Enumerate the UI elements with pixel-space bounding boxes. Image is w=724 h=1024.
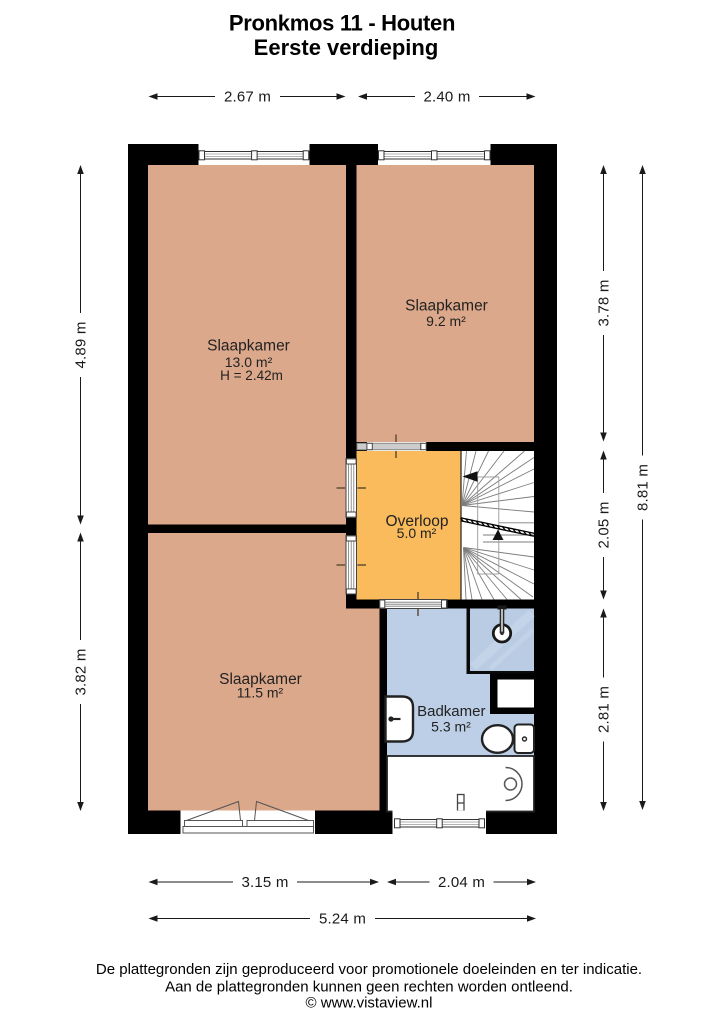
svg-text:Pronkmos 11 - Houten: Pronkmos 11 - Houten <box>229 11 455 36</box>
svg-text:3.15 m: 3.15 m <box>241 874 288 891</box>
svg-text:2.67 m: 2.67 m <box>224 89 271 106</box>
svg-text:Badkamer: Badkamer <box>417 703 485 720</box>
svg-text:11.5 m²: 11.5 m² <box>237 684 284 700</box>
svg-text:3.82 m: 3.82 m <box>73 648 90 695</box>
svg-text:Slaapkamer: Slaapkamer <box>405 298 488 315</box>
svg-text:2.04 m: 2.04 m <box>438 874 485 891</box>
svg-text:Aan de plattegronden kunnen ge: Aan de plattegronden kunnen geen rechten… <box>165 979 573 996</box>
svg-text:2.81 m: 2.81 m <box>596 686 613 733</box>
svg-text:2.40 m: 2.40 m <box>423 89 470 106</box>
svg-text:H = 2.42m: H = 2.42m <box>220 368 283 383</box>
svg-text:8.81 m: 8.81 m <box>635 464 652 511</box>
svg-text:Slaapkamer: Slaapkamer <box>207 338 290 355</box>
svg-text:4.89 m: 4.89 m <box>73 321 90 368</box>
svg-text:Eerste verdieping: Eerste verdieping <box>254 35 439 60</box>
svg-text:3.78 m: 3.78 m <box>596 279 613 326</box>
svg-text:© www.vistaview.nl: © www.vistaview.nl <box>306 995 433 1012</box>
svg-text:5.24 m: 5.24 m <box>319 911 366 928</box>
svg-text:5.0 m²: 5.0 m² <box>397 525 437 541</box>
svg-text:De plattegronden zijn geproduc: De plattegronden zijn geproduceerd voor … <box>96 961 642 978</box>
svg-text:9.2 m²: 9.2 m² <box>426 313 466 329</box>
svg-text:5.3 m²: 5.3 m² <box>431 719 471 735</box>
svg-text:2.05 m: 2.05 m <box>596 501 613 548</box>
